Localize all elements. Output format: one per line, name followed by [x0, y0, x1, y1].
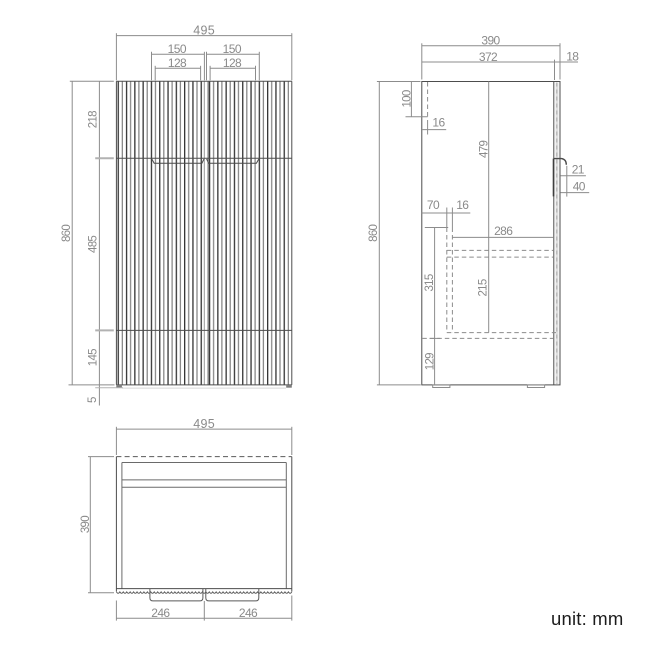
svg-text:unit: mm: unit: mm	[551, 608, 624, 629]
svg-text:21: 21	[572, 163, 585, 177]
svg-text:40: 40	[573, 179, 586, 193]
svg-text:218: 218	[87, 111, 99, 128]
svg-text:390: 390	[80, 516, 92, 533]
svg-text:246: 246	[151, 606, 170, 620]
svg-text:485: 485	[87, 236, 99, 253]
svg-text:18: 18	[566, 49, 579, 63]
svg-text:315: 315	[424, 274, 436, 291]
svg-text:215: 215	[478, 279, 490, 296]
svg-text:495: 495	[193, 417, 215, 431]
svg-text:16: 16	[456, 198, 469, 212]
svg-text:100: 100	[401, 90, 413, 107]
svg-text:150: 150	[168, 42, 187, 56]
svg-text:860: 860	[61, 225, 73, 242]
svg-text:129: 129	[424, 353, 436, 370]
svg-text:16: 16	[432, 115, 445, 129]
svg-text:150: 150	[223, 42, 242, 56]
svg-text:128: 128	[168, 56, 187, 70]
svg-text:145: 145	[87, 349, 99, 366]
svg-text:5: 5	[87, 397, 99, 403]
svg-text:390: 390	[481, 34, 500, 48]
svg-text:246: 246	[239, 606, 258, 620]
svg-text:495: 495	[193, 23, 215, 37]
svg-text:70: 70	[427, 198, 440, 212]
svg-text:479: 479	[478, 141, 490, 158]
svg-text:372: 372	[479, 50, 498, 64]
svg-text:128: 128	[223, 56, 242, 70]
svg-text:286: 286	[494, 224, 513, 238]
svg-text:860: 860	[368, 224, 380, 241]
